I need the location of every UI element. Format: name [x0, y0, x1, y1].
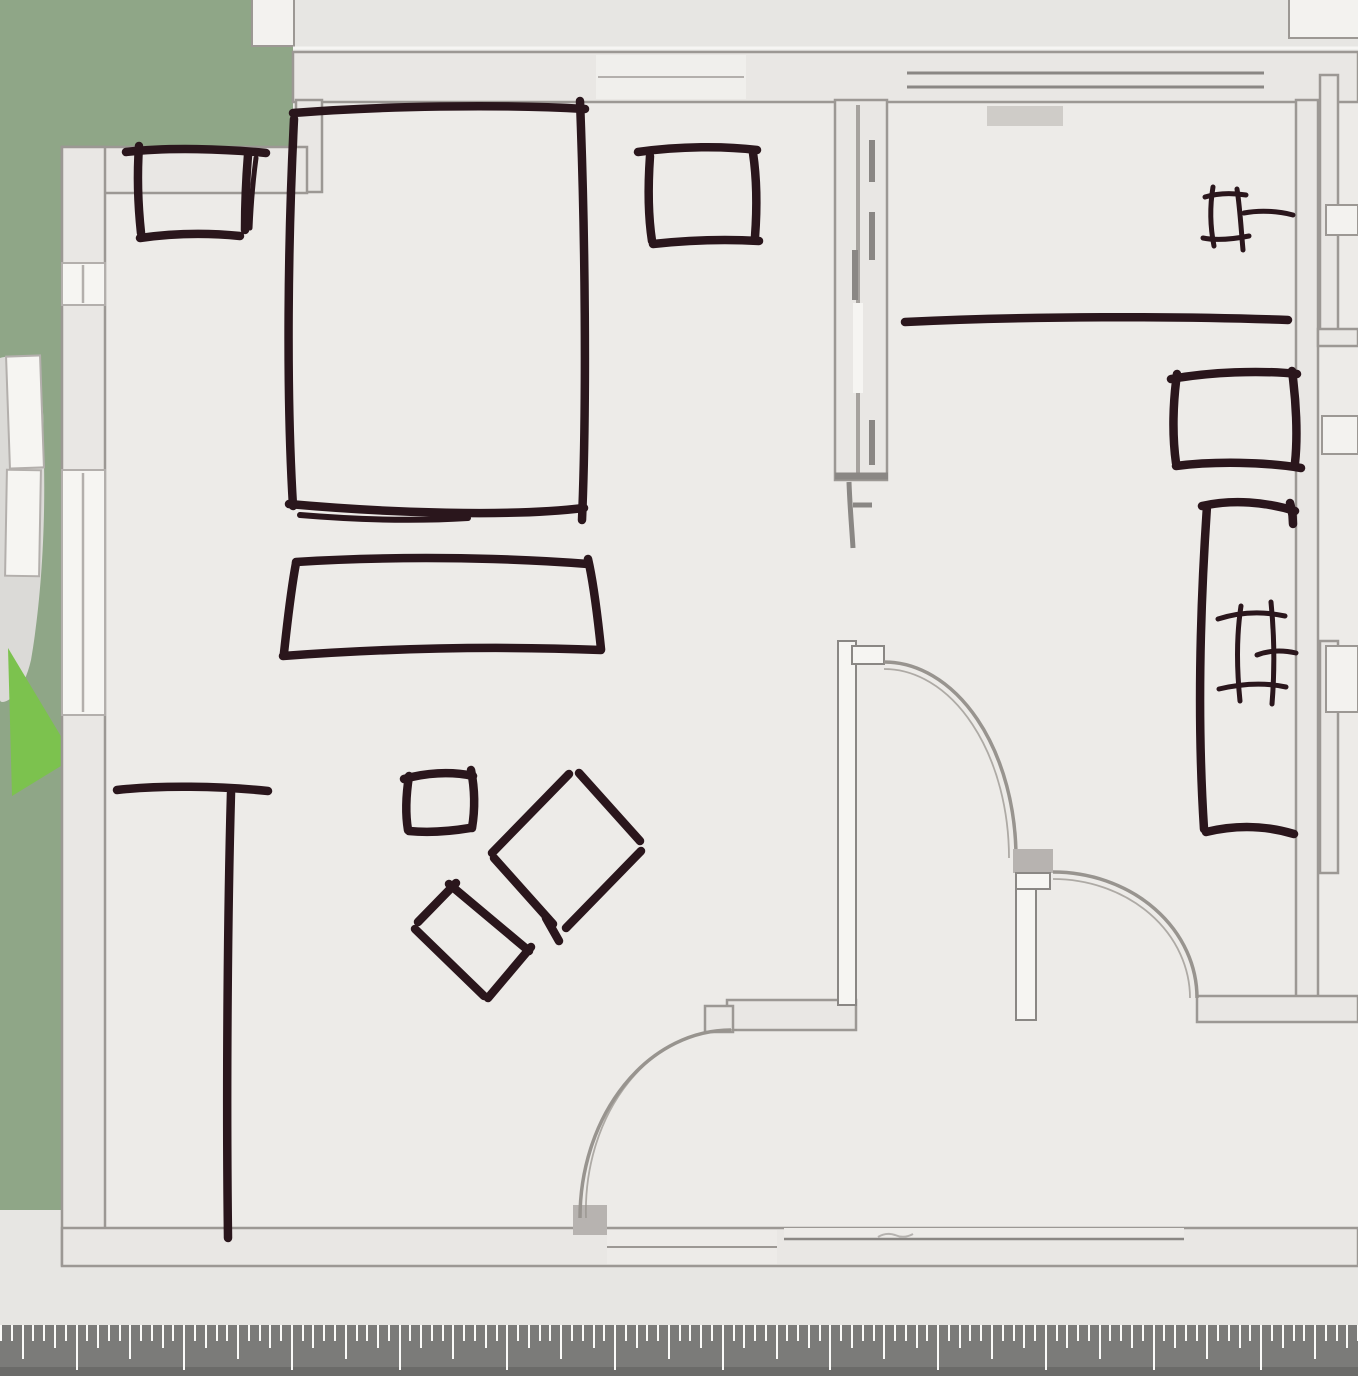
wall-right-divider[interactable] — [1318, 329, 1358, 346]
ruler-tick — [1249, 1325, 1251, 1341]
door-jamb-mid[interactable] — [852, 646, 884, 664]
outdoor-panel — [5, 470, 41, 577]
ruler-tick — [485, 1325, 487, 1348]
ruler-tick — [539, 1325, 541, 1341]
ruler-tick — [560, 1325, 562, 1359]
ruler-tick — [851, 1325, 853, 1348]
counter-line-sketch[interactable] — [905, 317, 1288, 322]
ruler-major-tick — [1260, 1325, 1262, 1370]
ruler-tick — [1034, 1325, 1036, 1341]
ruler-tick — [1142, 1325, 1144, 1341]
ruler-tick — [916, 1325, 918, 1348]
wall-interior-upper[interactable] — [835, 100, 887, 480]
ruler-tick — [323, 1325, 325, 1341]
ruler-major-tick — [722, 1325, 724, 1370]
ruler-tick — [517, 1325, 519, 1341]
ruler-tick — [194, 1325, 196, 1341]
wall-top[interactable] — [293, 52, 1358, 102]
ruler-tick — [1325, 1325, 1327, 1341]
ruler-major-tick — [399, 1325, 401, 1370]
ruler-tick — [905, 1325, 907, 1341]
ruler-tick — [765, 1325, 767, 1341]
ruler-tick — [312, 1325, 314, 1348]
ruler-tick — [894, 1325, 896, 1341]
door-wall-lower[interactable] — [1016, 889, 1036, 1020]
ruler-tick — [1303, 1325, 1305, 1341]
ruler-tick — [808, 1325, 810, 1348]
ruler-tick — [1293, 1325, 1295, 1341]
measurement-ruler — [0, 1325, 1358, 1376]
ruler-tick — [97, 1325, 99, 1348]
ruler-tick — [1163, 1325, 1165, 1341]
ruler-tick — [862, 1325, 864, 1341]
ruler-tick — [1131, 1325, 1133, 1348]
ruler-tick — [883, 1325, 885, 1359]
ruler-tick — [700, 1325, 702, 1348]
ruler-tick — [786, 1325, 788, 1341]
ruler-tick — [1282, 1325, 1284, 1348]
ruler-tick — [1239, 1325, 1241, 1348]
ruler-tick — [452, 1325, 454, 1359]
ruler-tick — [32, 1325, 34, 1341]
ruler-tick — [840, 1325, 842, 1341]
ruler-tick — [302, 1325, 304, 1341]
ruler-tick — [571, 1325, 573, 1341]
ruler-major-tick — [1153, 1325, 1155, 1370]
plan-drawing — [0, 0, 1358, 1376]
ruler-tick — [1185, 1325, 1187, 1341]
ruler-major-tick — [183, 1325, 185, 1370]
ruler-tick — [625, 1325, 627, 1341]
ruler-tick — [43, 1325, 45, 1341]
ruler-tick — [582, 1325, 584, 1341]
ruler-tick — [1013, 1325, 1015, 1341]
ruler-tick — [269, 1325, 271, 1348]
fixture-box[interactable] — [1326, 205, 1358, 235]
threshold-strip — [784, 1228, 1184, 1238]
ruler-tick — [1217, 1325, 1219, 1341]
outdoor-panel — [6, 355, 44, 468]
ruler-tick — [366, 1325, 368, 1341]
ruler-tick — [0, 1325, 2, 1341]
ruler-major-tick — [1045, 1325, 1047, 1370]
ruler-tick — [280, 1325, 282, 1341]
ruler-tick — [991, 1325, 993, 1359]
wall-right-col-upper[interactable] — [1320, 75, 1338, 331]
ruler-tick — [1002, 1325, 1004, 1341]
ruler-tick — [603, 1325, 605, 1341]
ruler-tick — [420, 1325, 422, 1348]
window-sill-mark — [987, 106, 1063, 126]
ruler-tick — [776, 1325, 778, 1359]
ruler-tick — [636, 1325, 638, 1348]
ruler-tick — [442, 1325, 444, 1341]
ruler-tick — [873, 1325, 875, 1341]
ruler-tick — [797, 1325, 799, 1341]
ruler-tick — [248, 1325, 250, 1341]
ruler-tick — [1099, 1325, 1101, 1359]
ruler-tick — [172, 1325, 174, 1341]
ruler-tick — [1336, 1325, 1338, 1341]
ruler-tick — [216, 1325, 218, 1341]
ruler-tick — [1196, 1325, 1198, 1341]
ruler-tick — [1120, 1325, 1122, 1341]
ruler-tick — [733, 1325, 735, 1341]
ruler-tick — [1346, 1325, 1348, 1348]
ruler-tick — [151, 1325, 153, 1341]
ruler-tick — [1088, 1325, 1090, 1341]
ruler-tick — [463, 1325, 465, 1341]
ruler-tick — [819, 1325, 821, 1341]
ruler-tick — [959, 1325, 961, 1348]
ruler-tick — [668, 1325, 670, 1359]
ruler-tick — [593, 1325, 595, 1348]
ruler-tick — [743, 1325, 745, 1348]
ruler-tick — [711, 1325, 713, 1341]
ruler-tick — [474, 1325, 476, 1341]
ruler-tick — [226, 1325, 228, 1341]
ruler-tick — [948, 1325, 950, 1341]
ruler-tick — [162, 1325, 164, 1348]
wall-stub-top[interactable] — [252, 0, 294, 46]
ruler-tick — [237, 1325, 239, 1359]
ruler-tick — [1077, 1325, 1079, 1341]
ruler-tick — [388, 1325, 390, 1341]
wall-bottom-right-horizontal[interactable] — [1197, 996, 1358, 1022]
ruler-tick — [119, 1325, 121, 1341]
ruler-tick — [1228, 1325, 1230, 1341]
ruler-tick — [409, 1325, 411, 1341]
ruler-major-tick — [829, 1325, 831, 1370]
ruler-tick — [108, 1325, 110, 1341]
ruler-tick — [377, 1325, 379, 1348]
ruler-tick — [54, 1325, 56, 1348]
ruler-major-tick — [506, 1325, 508, 1370]
floorplan-canvas[interactable] — [0, 0, 1358, 1376]
ruler-tick — [1206, 1325, 1208, 1359]
wall-right-mid[interactable] — [1296, 100, 1318, 998]
ruler-tick — [86, 1325, 88, 1341]
ruler-tick — [205, 1325, 207, 1348]
ruler-tick — [1056, 1325, 1058, 1341]
ruler-tick — [1174, 1325, 1176, 1348]
wall-vestibule[interactable] — [727, 1000, 856, 1030]
ruler-tick — [1314, 1325, 1316, 1359]
fixture-box[interactable] — [1326, 646, 1358, 712]
ruler-tick — [140, 1325, 142, 1341]
ruler-tick — [657, 1325, 659, 1341]
door-hinge-block[interactable] — [1013, 849, 1053, 873]
ruler-tick — [549, 1325, 551, 1341]
ruler-tick — [689, 1325, 691, 1341]
ruler-tick — [496, 1325, 498, 1341]
ruler-tick — [980, 1325, 982, 1341]
door-wall-mid[interactable] — [838, 641, 856, 1005]
ruler-major-tick — [291, 1325, 293, 1370]
ruler-tick — [1271, 1325, 1273, 1341]
ruler-tick — [22, 1325, 24, 1359]
ruler-tick — [431, 1325, 433, 1341]
top-right-box[interactable] — [1289, 0, 1358, 38]
ruler-tick — [754, 1325, 756, 1341]
ruler-tick — [345, 1325, 347, 1359]
fixture-box[interactable] — [1322, 416, 1358, 454]
wall-vestibule-step[interactable] — [705, 1006, 733, 1032]
ruler-tick — [65, 1325, 67, 1341]
ruler-tick — [528, 1325, 530, 1348]
ruler-tick — [334, 1325, 336, 1341]
ruler-tick — [259, 1325, 261, 1341]
door-hinge-block[interactable] — [573, 1205, 607, 1235]
ruler-tick — [1109, 1325, 1111, 1341]
ruler-major-tick — [937, 1325, 939, 1370]
interior-floor — [95, 95, 1358, 1248]
ruler-tick — [926, 1325, 928, 1341]
ruler-tick — [129, 1325, 131, 1359]
ruler-tick — [11, 1325, 13, 1341]
ruler-major-tick — [614, 1325, 616, 1370]
ruler-tick — [1023, 1325, 1025, 1348]
ruler-tick — [679, 1325, 681, 1341]
ruler-tick — [356, 1325, 358, 1341]
ruler-tick — [646, 1325, 648, 1341]
ruler-tick — [969, 1325, 971, 1341]
ruler-tick — [1066, 1325, 1068, 1348]
ruler-major-tick — [76, 1325, 78, 1370]
